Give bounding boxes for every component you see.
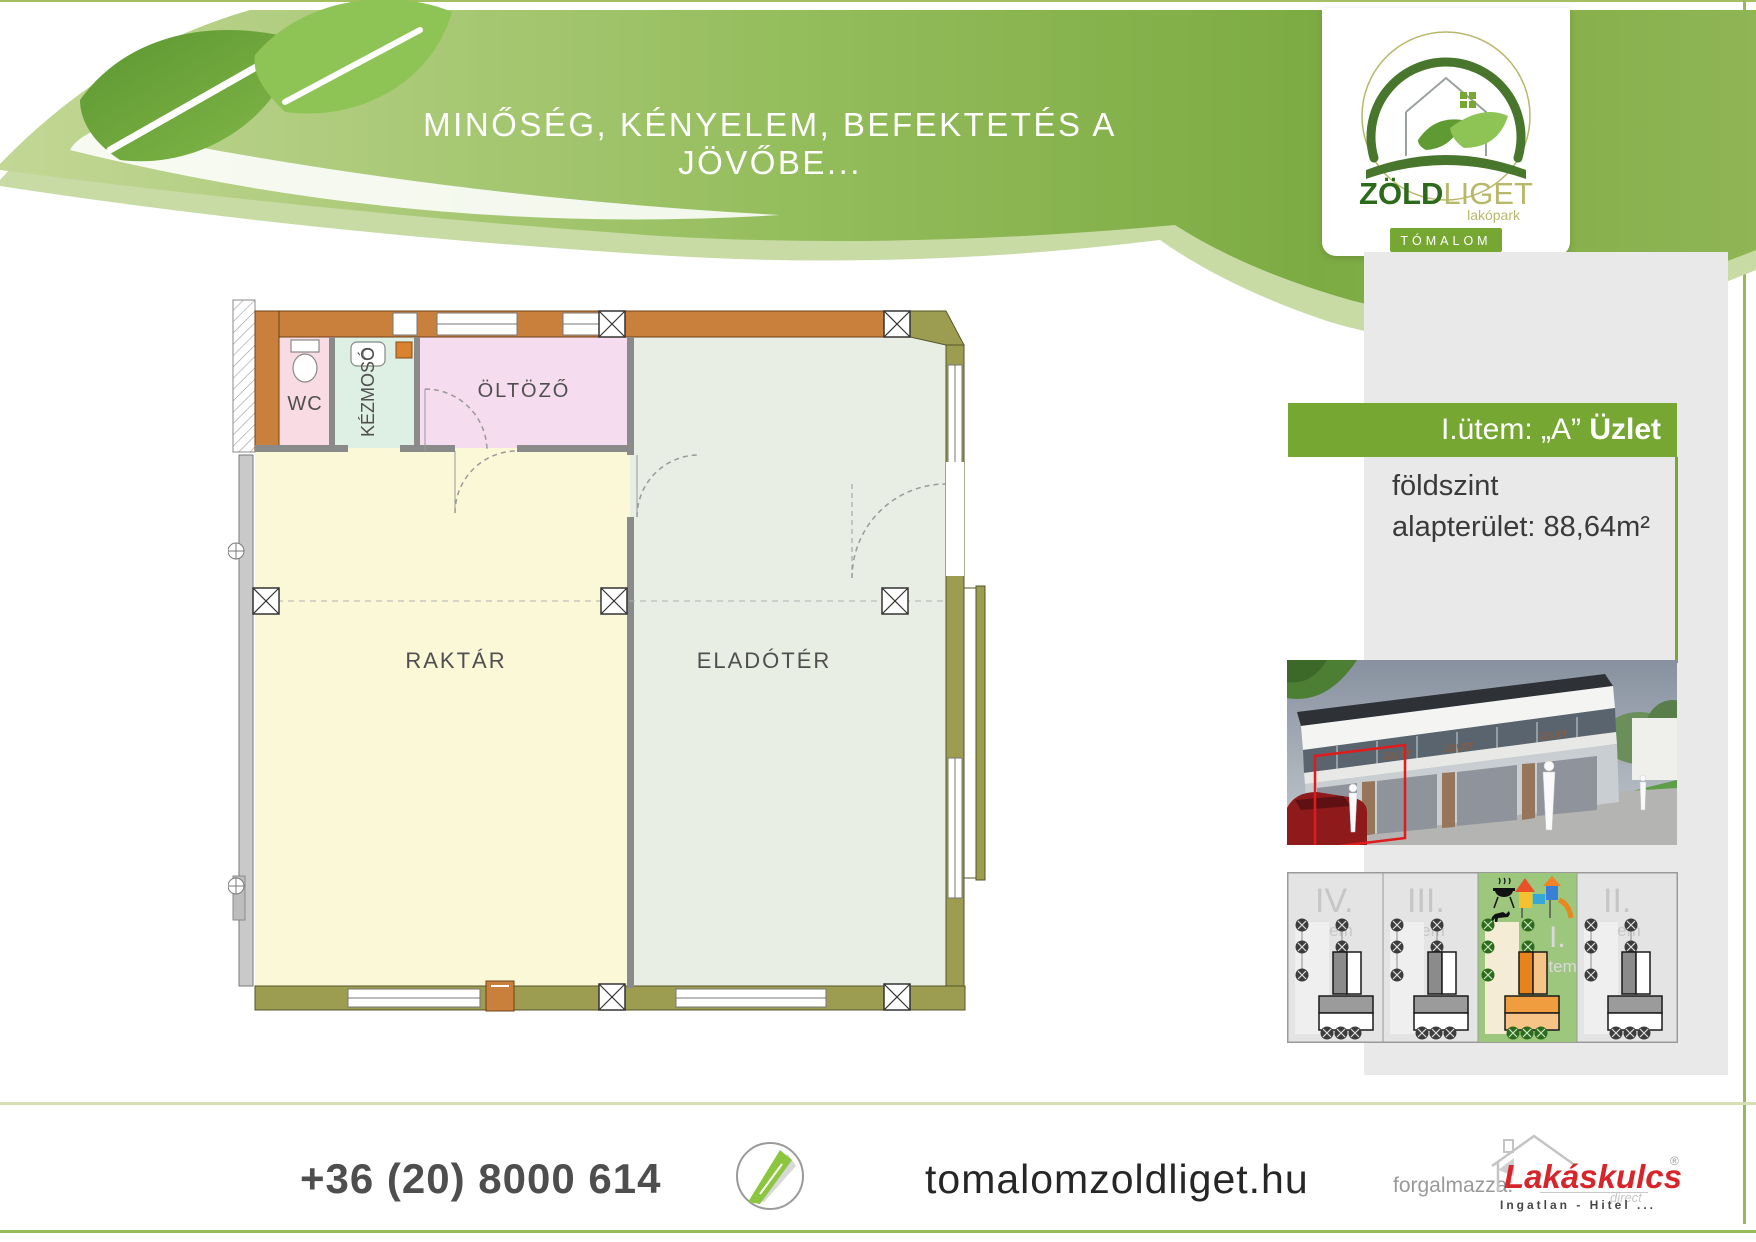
room-raktar <box>255 448 630 988</box>
site-plan-strip: IV. ütem III. ütem <box>1287 872 1678 1043</box>
unit-banner-type: Üzlet <box>1589 413 1661 446</box>
panel-accent-line <box>1675 457 1678 663</box>
building-render: ÜZLET ÜZLET ÜZLET <box>1287 660 1677 845</box>
logo-subtitle: lakópark <box>1467 207 1521 223</box>
footer-divider <box>0 1102 1756 1105</box>
room-label-wc: WC <box>287 393 322 415</box>
phone-number: +36 (20) 8000 614 <box>300 1155 661 1203</box>
logo-title-light: LIGET <box>1443 176 1533 211</box>
unit-banner: I.ütem: „A” Üzlet <box>1288 403 1677 457</box>
brand-tagline: Ingatlan - Hitel ... <box>1500 1198 1656 1212</box>
room-label-raktar: RAKTÁR <box>405 648 506 673</box>
toilet-icon <box>291 340 319 382</box>
unit-floor: földszint <box>1392 466 1650 507</box>
floor-plan: WC KÉZMOSÓ ÖLTÖZŐ RAKTÁR ELADÓTÉR <box>228 295 994 1017</box>
logo-title-bold: ZÖLD <box>1359 176 1443 211</box>
room-label-oltozo: ÖLTÖZŐ <box>478 379 571 402</box>
hatched-wall <box>233 300 255 452</box>
unit-area: alapterület: 88,64m² <box>1392 507 1650 548</box>
pencil-circle-icon <box>730 1136 810 1216</box>
room-label-kezmoso: KÉZMOSÓ <box>357 347 378 437</box>
website-url: tomalomzoldliget.hu <box>925 1156 1309 1203</box>
svg-text:ZÖLDLIGET: ZÖLDLIGET <box>1359 176 1533 211</box>
site-section-numeral: III. <box>1407 882 1445 920</box>
zoldliget-logo: ZÖLDLIGET lakópark TÓMALOM <box>1322 8 1570 256</box>
site-section-numeral: IV. <box>1315 882 1353 920</box>
boiler-icon <box>396 342 412 358</box>
brochure-page: MINŐSÉG, KÉNYELEM, BEFEKTETÉS A JÖVŐBE..… <box>0 0 1756 1242</box>
logo-card: ZÖLDLIGET lakópark TÓMALOM <box>1322 8 1570 256</box>
registered-mark: ® <box>1670 1154 1679 1168</box>
unit-banner-phase: I.ütem: „A” <box>1441 413 1589 446</box>
brand-name: Lakáskulcs <box>1504 1158 1682 1196</box>
room-label-eladoter: ELADÓTÉR <box>697 648 832 673</box>
site-section-numeral: I. <box>1549 921 1566 954</box>
page-border-bottom <box>0 1230 1756 1233</box>
logo-badge: TÓMALOM <box>1400 233 1491 248</box>
header-slogan: MINŐSÉG, KÉNYELEM, BEFEKTETÉS A JÖVŐBE..… <box>380 106 1160 182</box>
site-section-numeral: II. <box>1603 882 1631 920</box>
render-side-building <box>1632 718 1677 780</box>
unit-info: földszint alapterület: 88,64m² <box>1392 466 1650 548</box>
lakaskulcs-logo: Lakáskulcs ® direct Ingatlan - Hitel ... <box>1488 1130 1698 1220</box>
